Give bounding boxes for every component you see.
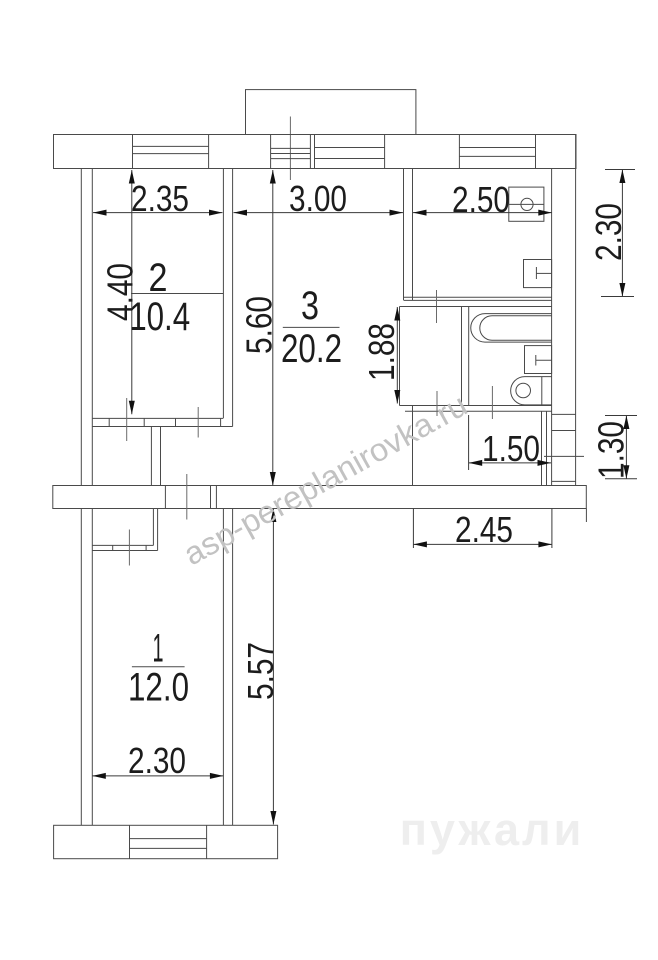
svg-text:2.30: 2.30 [588,203,629,261]
svg-text:1.30: 1.30 [591,421,632,479]
svg-text:10.4: 10.4 [129,295,190,339]
svg-text:1: 1 [153,627,164,671]
svg-text:1.50: 1.50 [482,428,540,469]
svg-text:3: 3 [301,284,319,328]
svg-text:5.57: 5.57 [240,642,281,700]
svg-text:2.50: 2.50 [452,179,510,220]
svg-text:2.35: 2.35 [131,178,189,219]
svg-text:12.0: 12.0 [128,666,189,710]
svg-text:20.2: 20.2 [281,327,342,371]
svg-text:2.30: 2.30 [128,740,186,781]
svg-text:2.45: 2.45 [455,509,513,550]
svg-text:3.00: 3.00 [289,178,347,219]
svg-text:пужали: пужали [400,804,585,855]
svg-text:1.88: 1.88 [361,323,402,381]
svg-text:5.60: 5.60 [239,296,280,354]
